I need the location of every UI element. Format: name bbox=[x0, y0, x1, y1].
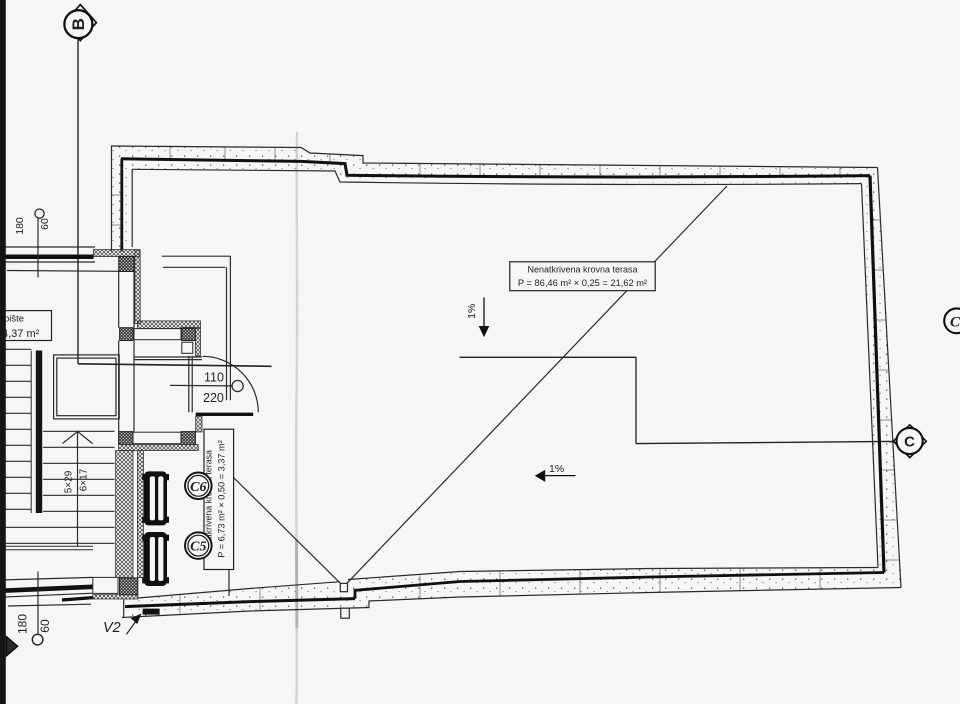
svg-text:1%: 1% bbox=[466, 304, 478, 319]
svg-text:180: 180 bbox=[16, 614, 30, 634]
svg-text:B: B bbox=[69, 18, 88, 30]
svg-text:C6: C6 bbox=[190, 480, 206, 495]
svg-text:V2: V2 bbox=[103, 620, 121, 636]
svg-text:110: 110 bbox=[204, 371, 224, 385]
svg-text:Nenatkrivena krovna terasa: Nenatkrivena krovna terasa bbox=[527, 265, 637, 275]
svg-text:220: 220 bbox=[203, 391, 224, 405]
svg-text:C: C bbox=[904, 434, 915, 451]
svg-text:C: C bbox=[950, 315, 960, 331]
svg-text:P = 6,73 m² × 0,50 = 3,37 m²: P = 6,73 m² × 0,50 = 3,37 m² bbox=[217, 440, 227, 558]
svg-text:5×29: 5×29 bbox=[64, 470, 75, 493]
svg-text:C5: C5 bbox=[190, 540, 206, 555]
svg-text:1%: 1% bbox=[549, 463, 564, 475]
svg-text:P = 86,46 m² × 0,25 = 21,62 m²: P = 86,46 m² × 0,25 = 21,62 m² bbox=[518, 278, 647, 288]
svg-text:60: 60 bbox=[39, 218, 51, 230]
svg-text:60: 60 bbox=[38, 619, 52, 633]
svg-text:180: 180 bbox=[14, 217, 26, 235]
svg-text:bište: bište bbox=[4, 314, 24, 325]
svg-text:6×17: 6×17 bbox=[79, 468, 90, 491]
svg-text:4,37 m²: 4,37 m² bbox=[2, 328, 40, 340]
